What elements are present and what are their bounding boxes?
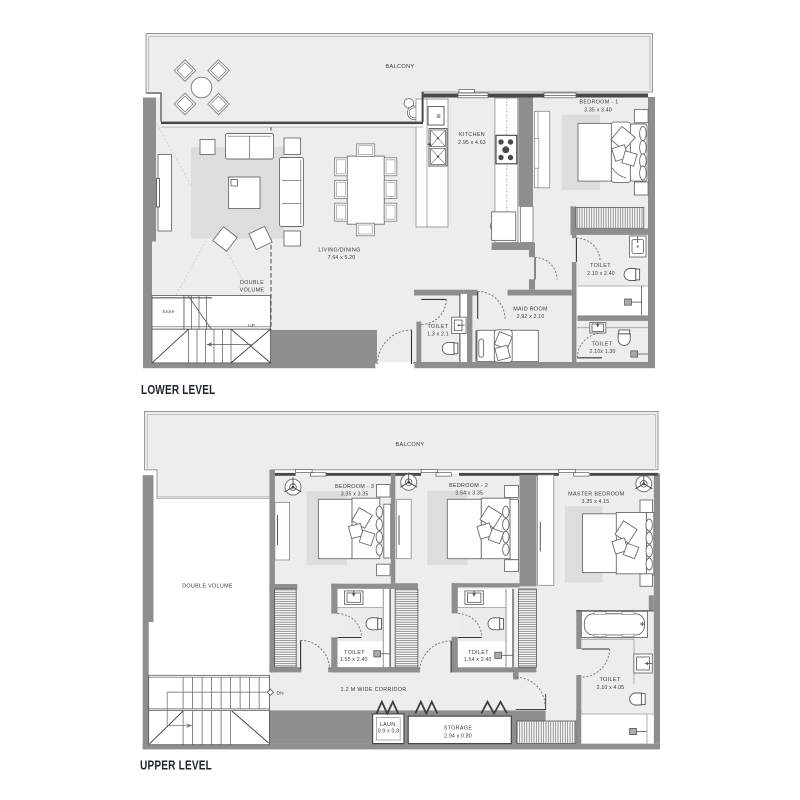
- svg-text:BEDROOM - 1: BEDROOM - 1: [579, 100, 618, 106]
- svg-text:TOILET: TOILET: [600, 677, 621, 683]
- svg-text:1.3 x 2.1: 1.3 x 2.1: [427, 331, 449, 337]
- svg-text:BALCONY: BALCONY: [386, 64, 415, 70]
- svg-text:TOILET: TOILET: [590, 263, 611, 269]
- svg-text:UP: UP: [248, 323, 255, 329]
- svg-text:LOWER LEVEL: LOWER LEVEL: [141, 383, 216, 397]
- svg-text:W: W: [434, 114, 440, 119]
- svg-text:TOILET: TOILET: [592, 342, 613, 348]
- svg-text:2.95 x 4.63: 2.95 x 4.63: [458, 140, 486, 146]
- svg-text:LIVING/DINING: LIVING/DINING: [318, 248, 360, 254]
- svg-text:7.64 x 5.20: 7.64 x 5.20: [328, 255, 356, 261]
- svg-text:1.2 M WIDE CORRIDOR: 1.2 M WIDE CORRIDOR: [341, 687, 407, 693]
- svg-text:STORAGE: STORAGE: [444, 726, 473, 732]
- svg-text:3.54 x 3.35: 3.54 x 3.35: [455, 490, 483, 496]
- svg-text:UPPER LEVEL: UPPER LEVEL: [140, 759, 212, 773]
- svg-text:3.35 x 4.15: 3.35 x 4.15: [582, 499, 610, 505]
- svg-text:2.10 x 4.05: 2.10 x 4.05: [597, 685, 625, 691]
- svg-text:DN: DN: [277, 690, 285, 696]
- svg-text:LAUN.: LAUN.: [380, 722, 397, 728]
- svg-text:MASTER BEDROOM: MASTER BEDROOM: [568, 492, 624, 498]
- svg-text:DOUBLE: DOUBLE: [240, 280, 264, 286]
- svg-text:1.55 x 2.40: 1.55 x 2.40: [340, 657, 368, 663]
- svg-text:2.94 x 0.80: 2.94 x 0.80: [444, 734, 472, 740]
- svg-text:TOILET: TOILET: [344, 650, 365, 656]
- svg-text:TOILET: TOILET: [428, 324, 449, 330]
- svg-text:1.54 x 2.40: 1.54 x 2.40: [464, 657, 492, 663]
- svg-text:BEDROOM - 2: BEDROOM - 2: [449, 483, 488, 489]
- svg-text:2.10x 1.30: 2.10x 1.30: [589, 349, 615, 355]
- svg-text:MAID ROOM: MAID ROOM: [513, 307, 548, 313]
- svg-text:3.35 x 3.40: 3.35 x 3.40: [584, 108, 612, 114]
- svg-text:KITCHEN: KITCHEN: [459, 132, 485, 138]
- svg-text:VOLUME: VOLUME: [240, 288, 265, 294]
- svg-text:TOILET: TOILET: [468, 650, 489, 656]
- svg-text:Store: Store: [162, 309, 175, 315]
- svg-text:BEDROOM - 3: BEDROOM - 3: [335, 484, 374, 490]
- svg-text:2.10 x 2.40: 2.10 x 2.40: [587, 271, 615, 277]
- svg-text:DOUBLE VOLUME: DOUBLE VOLUME: [182, 584, 233, 590]
- svg-text:3.35 x 3.35: 3.35 x 3.35: [341, 491, 369, 497]
- svg-text:2.92 x 2.10: 2.92 x 2.10: [517, 314, 545, 320]
- svg-text:BALCONY: BALCONY: [396, 442, 425, 448]
- svg-text:0.9 x 0.8: 0.9 x 0.8: [378, 729, 400, 735]
